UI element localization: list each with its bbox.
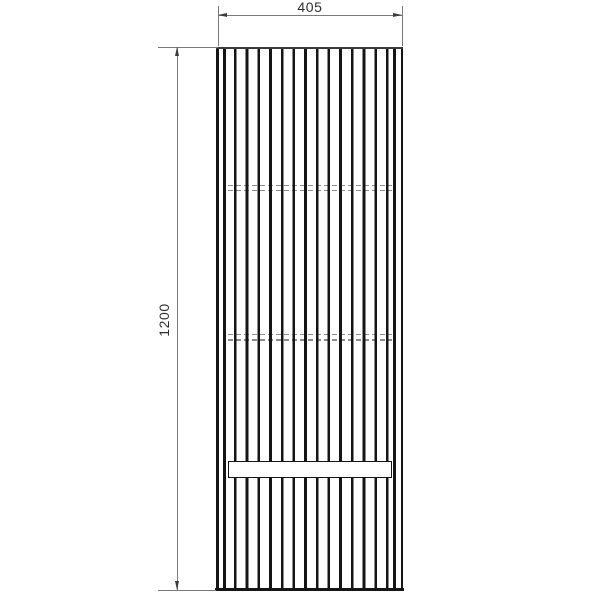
cabinet-top-edge [216,47,403,49]
cabinet-right-outer-edge [401,47,404,590]
handle-recess-band [228,461,392,478]
width-dimension-label: 405 [285,0,335,14]
cabinet-bottom-edge [215,588,404,591]
width-arrow-left-icon [218,13,227,17]
height-arrow-top-icon [175,47,179,56]
height-dimension-label: 1200 [157,295,171,345]
width-dimension-line [218,15,402,16]
cabinet-left-outer-edge [216,47,219,590]
width-arrow-right-icon [393,13,402,17]
slat-panel [234,48,390,588]
cabinet-left-inner-edge [223,47,226,590]
height-extension-line-top [158,47,218,48]
height-dimension-line [177,47,178,590]
width-extension-line-right [402,6,403,46]
height-arrow-bottom-icon [175,581,179,590]
height-extension-line-bottom [158,590,216,591]
drawing-canvas: 405 1200 [0,0,600,600]
width-extension-line-left [218,6,219,46]
cabinet-right-inner-edge [393,47,396,590]
